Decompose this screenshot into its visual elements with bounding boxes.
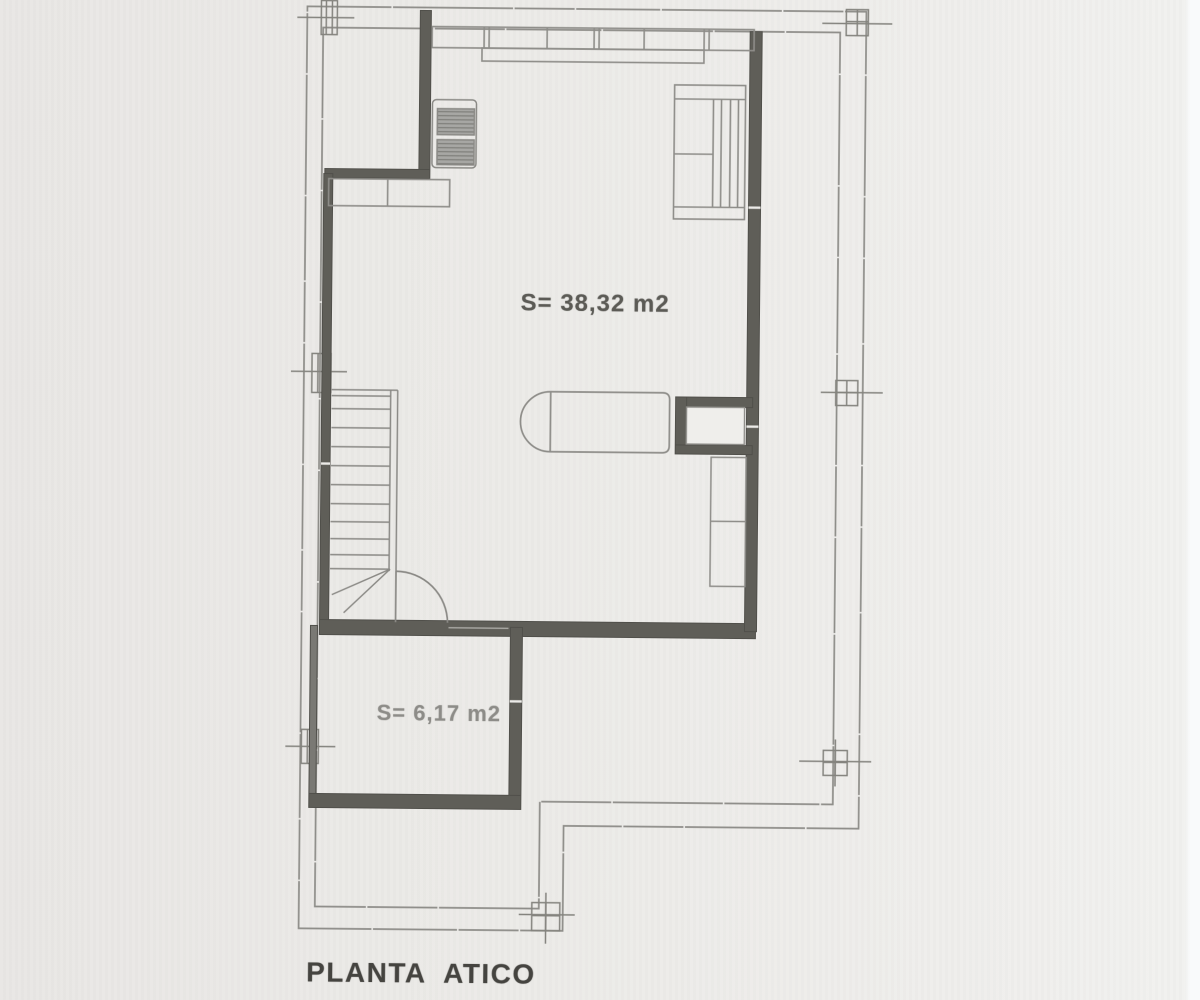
kitchen-counter-edge bbox=[482, 48, 704, 63]
wall-bottom-main bbox=[319, 620, 755, 639]
wall-right bbox=[744, 32, 762, 632]
stove-burner-bottom bbox=[437, 140, 474, 165]
scanned-floor-plan-page: S= 38,32 m2 S= 6,17 m2 PLANTA ATICO bbox=[0, 0, 1200, 1000]
door-arc bbox=[396, 571, 448, 622]
door-swing bbox=[396, 571, 448, 622]
lower-room-area-label: S= 6,17 m2 bbox=[377, 700, 502, 727]
column-lower-right bbox=[799, 739, 871, 787]
column-top-left bbox=[297, 0, 354, 35]
shower-interior bbox=[686, 407, 744, 445]
column-mid-left bbox=[291, 353, 347, 393]
stove-burner-top bbox=[437, 109, 474, 135]
column-mid-right bbox=[821, 380, 883, 406]
sofa bbox=[673, 85, 745, 220]
stove bbox=[432, 100, 477, 168]
wall-lower-room-left bbox=[309, 625, 318, 793]
stair-winders bbox=[332, 569, 390, 614]
main-room-area-label: S= 38,32 m2 bbox=[520, 289, 669, 318]
bathtub bbox=[520, 391, 670, 452]
wall-lower-room-right bbox=[509, 627, 523, 809]
left-counter bbox=[329, 179, 450, 207]
floor-plan-svg bbox=[0, 0, 1200, 1000]
wall-left-upper bbox=[419, 10, 432, 174]
floor-plan-drawing: S= 38,32 m2 S= 6,17 m2 PLANTA ATICO bbox=[0, 0, 1200, 1000]
wall-shower-bottom bbox=[675, 445, 752, 455]
kitchen-cabinets bbox=[432, 27, 754, 64]
sofa-outline bbox=[673, 85, 745, 220]
staircase bbox=[330, 390, 398, 614]
bathtub-inner-line bbox=[550, 392, 551, 452]
column-bottom bbox=[518, 892, 574, 944]
closet bbox=[710, 457, 746, 586]
plan-title: PLANTA ATICO bbox=[306, 956, 536, 990]
wall-step bbox=[325, 169, 430, 179]
wall-lower-room-bottom bbox=[309, 793, 521, 809]
bathtub-outline bbox=[520, 391, 670, 452]
